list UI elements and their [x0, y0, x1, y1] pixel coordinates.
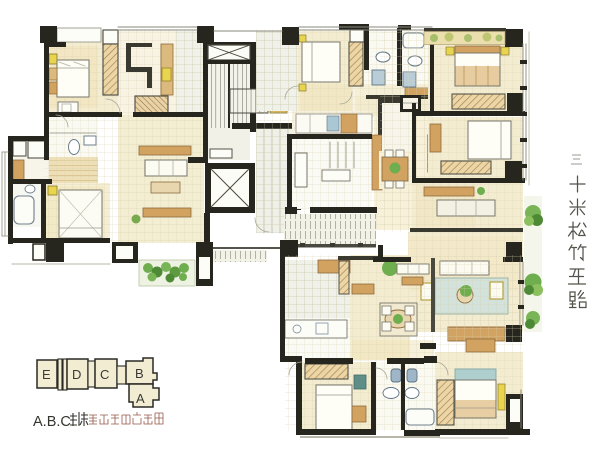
svg-text:A: A [136, 391, 145, 406]
svg-text:D: D [72, 367, 81, 382]
svg-text:E: E [42, 367, 51, 382]
svg-text:C: C [100, 367, 109, 382]
svg-text:A.B.C: A.B.C [33, 414, 71, 430]
svg-text:B: B [135, 366, 144, 381]
